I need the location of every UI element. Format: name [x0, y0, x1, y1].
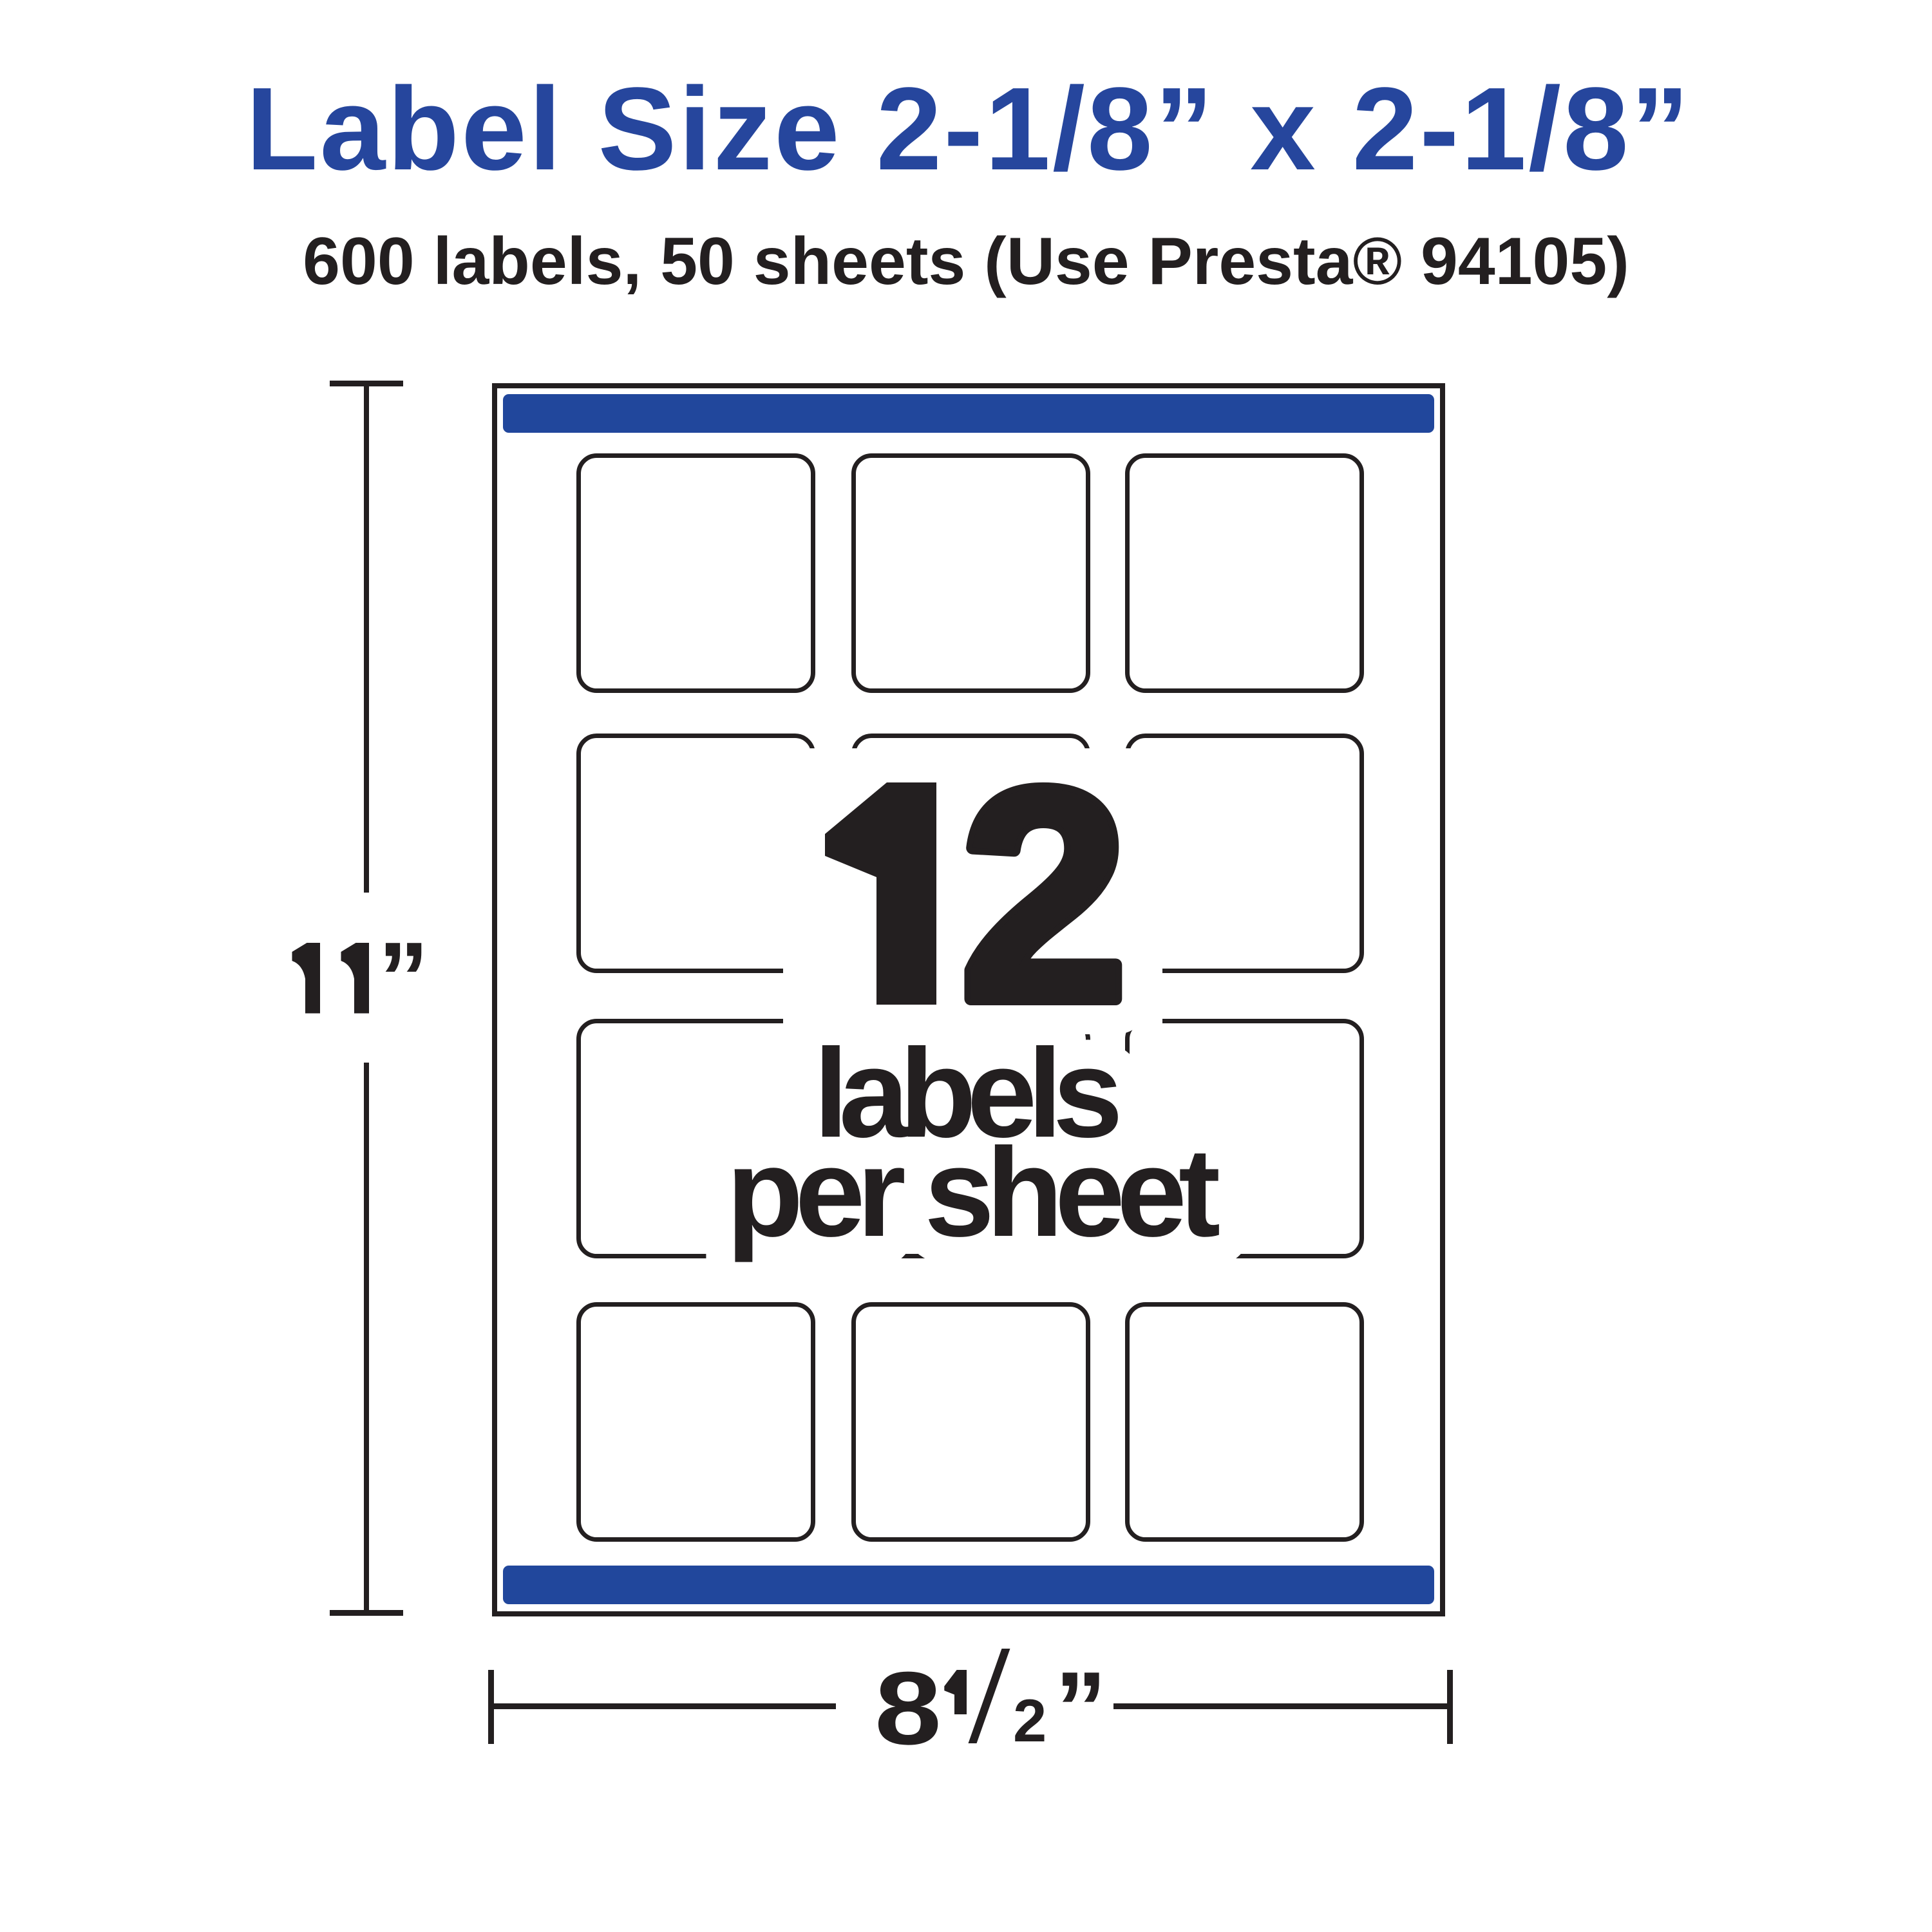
svg-text:per sheet: per sheet [726, 1122, 1219, 1263]
svg-text:2: 2 [1013, 1687, 1046, 1754]
svg-text:Label Size 2-1/8” x 2-1/8”: Label Size 2-1/8” x 2-1/8” [246, 62, 1692, 194]
svg-text:”: ” [1055, 1651, 1107, 1766]
svg-text:600 labels, 50 sheets (Use Pre: 600 labels, 50 sheets (Use Presta® 94105… [303, 224, 1629, 299]
svg-text:2: 2 [960, 726, 1128, 1063]
svg-text:”: ” [378, 922, 429, 1035]
svg-text:8: 8 [875, 1651, 942, 1766]
